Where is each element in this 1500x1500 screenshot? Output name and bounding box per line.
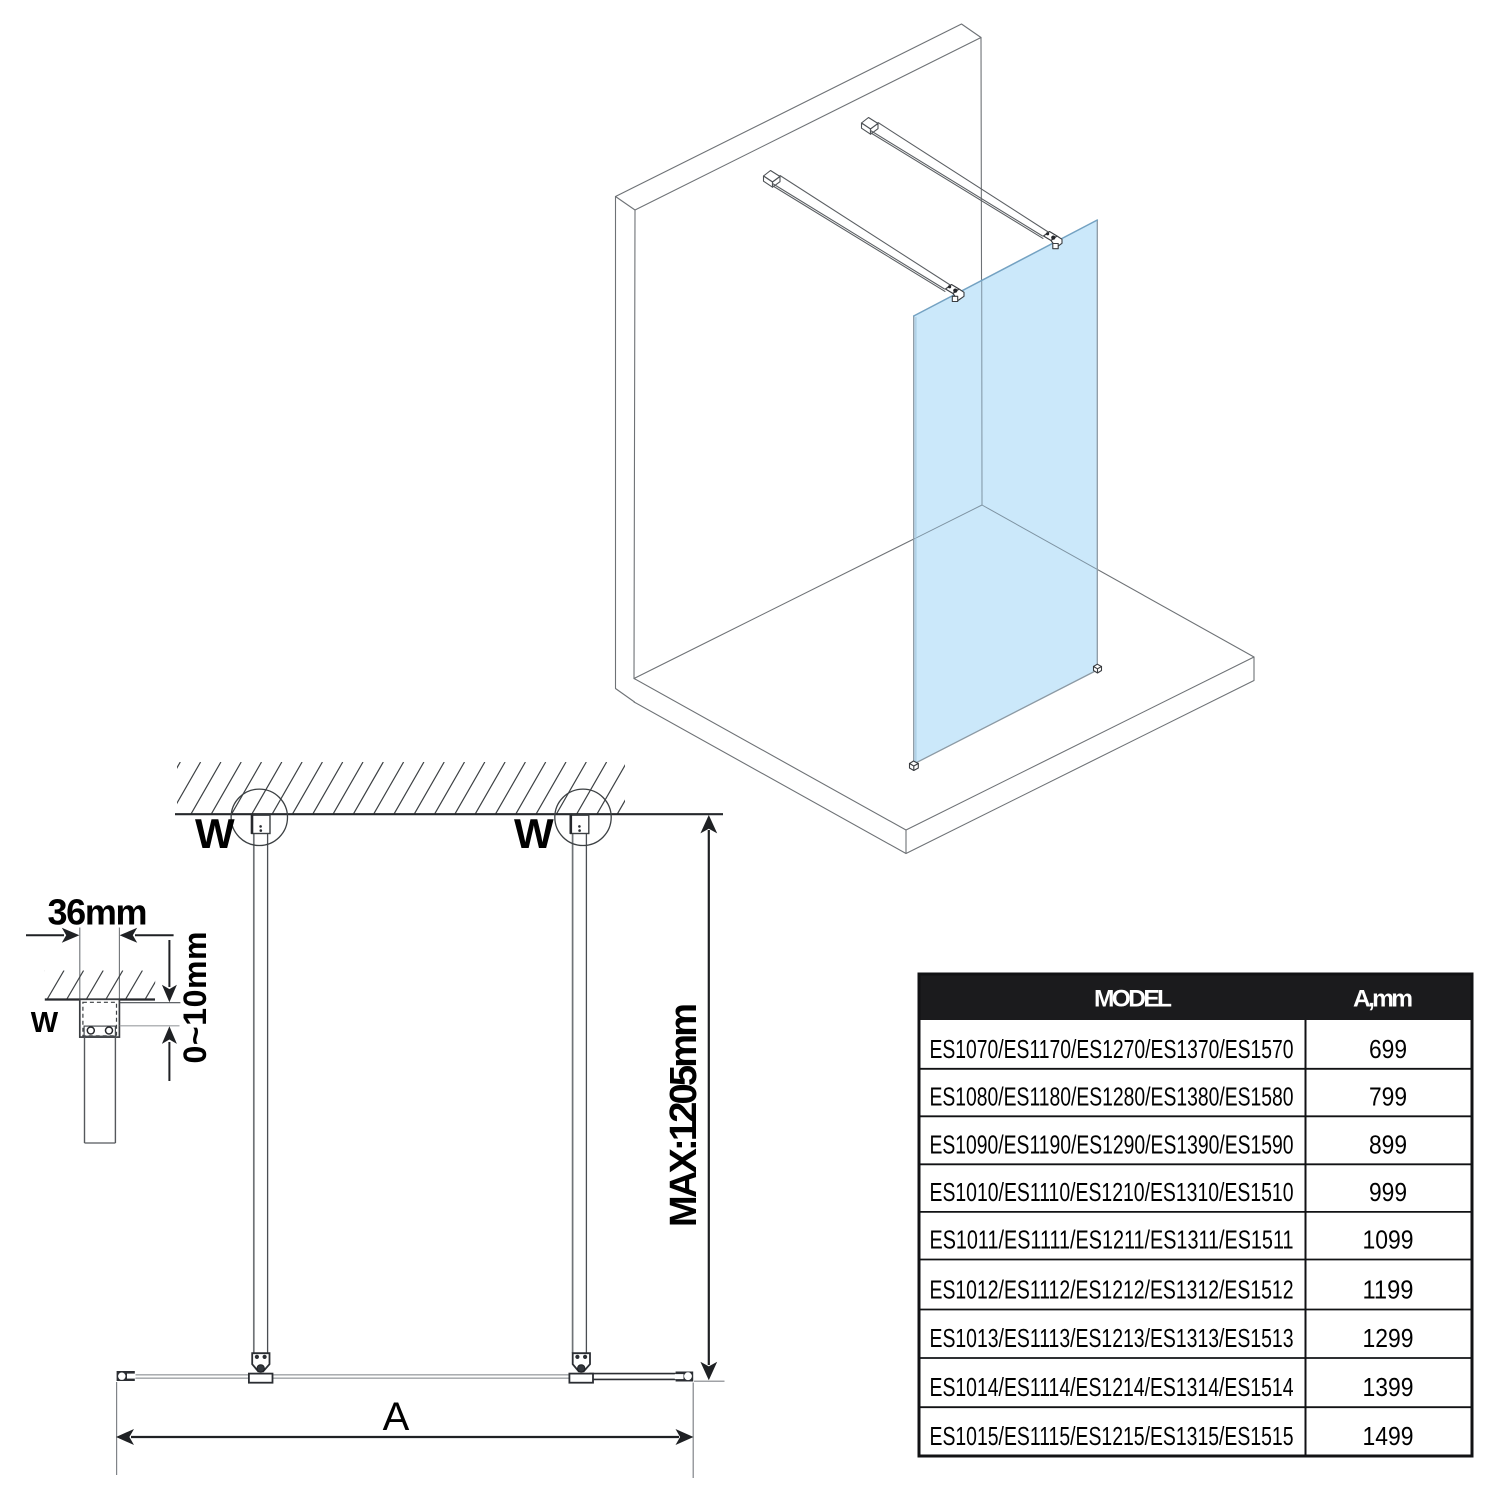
svg-text:1199: 1199 <box>1363 1277 1414 1305</box>
svg-text:W: W <box>195 810 235 857</box>
svg-text:ES1090/ES1190/ES1290/ES1390/ES: ES1090/ES1190/ES1290/ES1390/ES1590 <box>930 1131 1294 1159</box>
svg-text:1499: 1499 <box>1363 1423 1414 1451</box>
svg-text:1399: 1399 <box>1363 1374 1414 1402</box>
svg-text:899: 899 <box>1369 1131 1407 1159</box>
svg-text:MAX:1205mm: MAX:1205mm <box>663 1003 705 1227</box>
svg-text:ES1070/ES1170/ES1270/ES1370/ES: ES1070/ES1170/ES1270/ES1370/ES1570 <box>930 1036 1294 1064</box>
svg-text:ES1015/ES1115/ES1215/ES1315/ES: ES1015/ES1115/ES1215/ES1315/ES1515 <box>930 1423 1294 1451</box>
svg-text:ES1010/ES1110/ES1210/ES1310/ES: ES1010/ES1110/ES1210/ES1310/ES1510 <box>930 1179 1294 1207</box>
svg-text:A: A <box>383 1395 410 1439</box>
svg-text:ES1014/ES1114/ES1214/ES1314/ES: ES1014/ES1114/ES1214/ES1314/ES1514 <box>930 1374 1294 1402</box>
svg-text:ES1011/ES1111/ES1211/ES1311/ES: ES1011/ES1111/ES1211/ES1311/ES1511 <box>930 1227 1294 1255</box>
svg-text:0~10mm: 0~10mm <box>177 932 213 1064</box>
svg-text:W: W <box>514 810 554 857</box>
svg-text:699: 699 <box>1369 1036 1407 1064</box>
svg-text:ES1080/ES1180/ES1280/ES1380/ES: ES1080/ES1180/ES1280/ES1380/ES1580 <box>930 1083 1294 1111</box>
svg-text:999: 999 <box>1369 1179 1407 1207</box>
svg-text:W: W <box>31 1007 59 1039</box>
svg-text:1299: 1299 <box>1363 1325 1414 1353</box>
svg-text:ES1012/ES1112/ES1212/ES1312/ES: ES1012/ES1112/ES1212/ES1312/ES1512 <box>930 1277 1294 1305</box>
svg-text:A,mm: A,mm <box>1353 986 1413 1013</box>
svg-text:36mm: 36mm <box>48 892 148 933</box>
svg-text:MODEL: MODEL <box>1094 986 1172 1013</box>
svg-text:1099: 1099 <box>1363 1227 1414 1255</box>
svg-text:799: 799 <box>1369 1083 1407 1111</box>
svg-text:ES1013/ES1113/ES1213/ES1313/ES: ES1013/ES1113/ES1213/ES1313/ES1513 <box>930 1325 1294 1353</box>
